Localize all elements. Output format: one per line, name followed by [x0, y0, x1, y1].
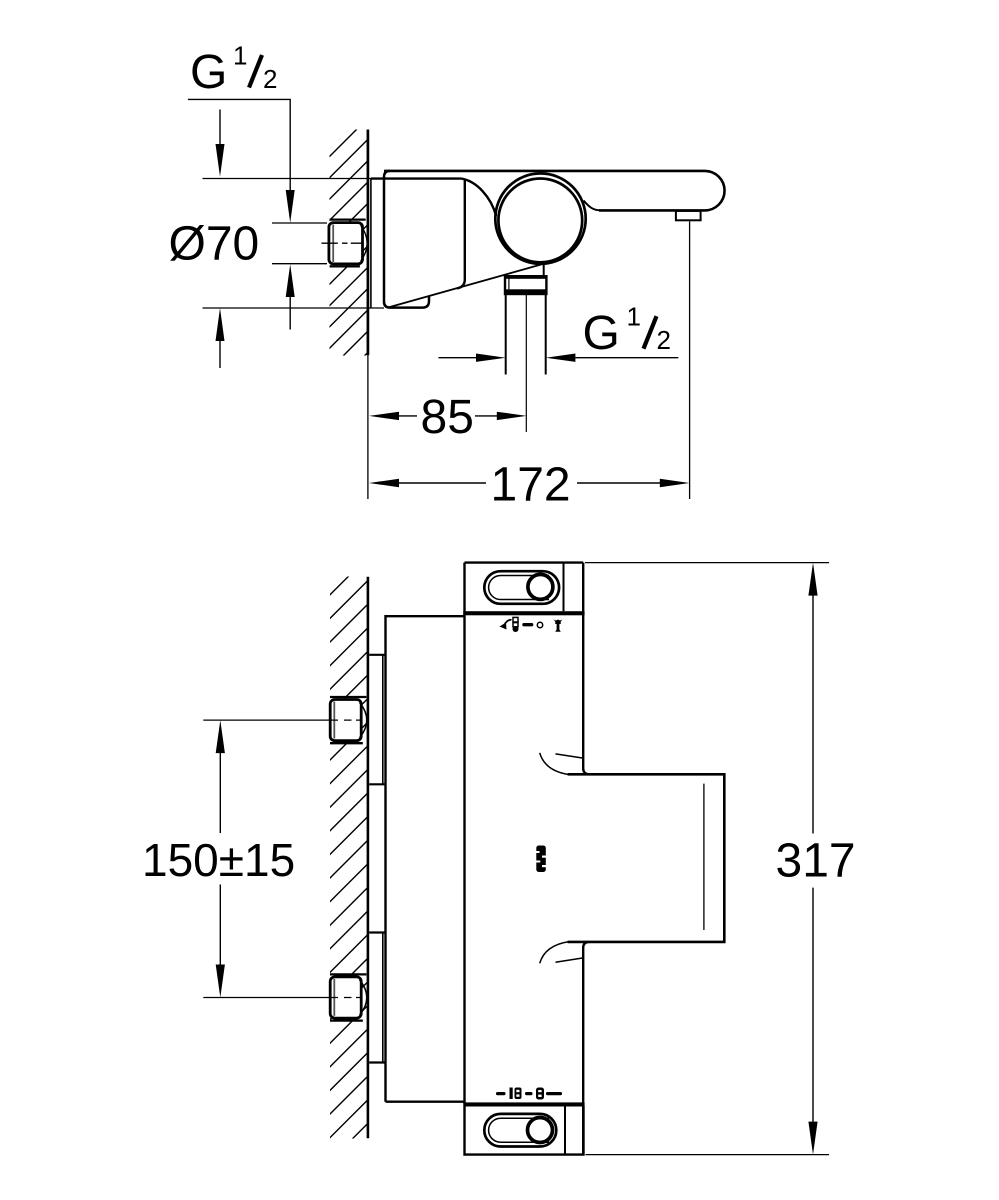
svg-text:317: 317 [776, 834, 856, 887]
svg-text:G: G [583, 307, 620, 360]
svg-text:1: 1 [233, 41, 247, 71]
svg-text:85: 85 [421, 391, 474, 444]
svg-text:Ø70: Ø70 [169, 218, 260, 271]
svg-text:G: G [190, 46, 227, 99]
svg-text:2: 2 [263, 64, 277, 94]
svg-text:172: 172 [491, 459, 571, 512]
svg-text:1: 1 [627, 302, 641, 332]
svg-text:2: 2 [657, 325, 671, 355]
svg-text:150±15: 150±15 [142, 834, 295, 886]
